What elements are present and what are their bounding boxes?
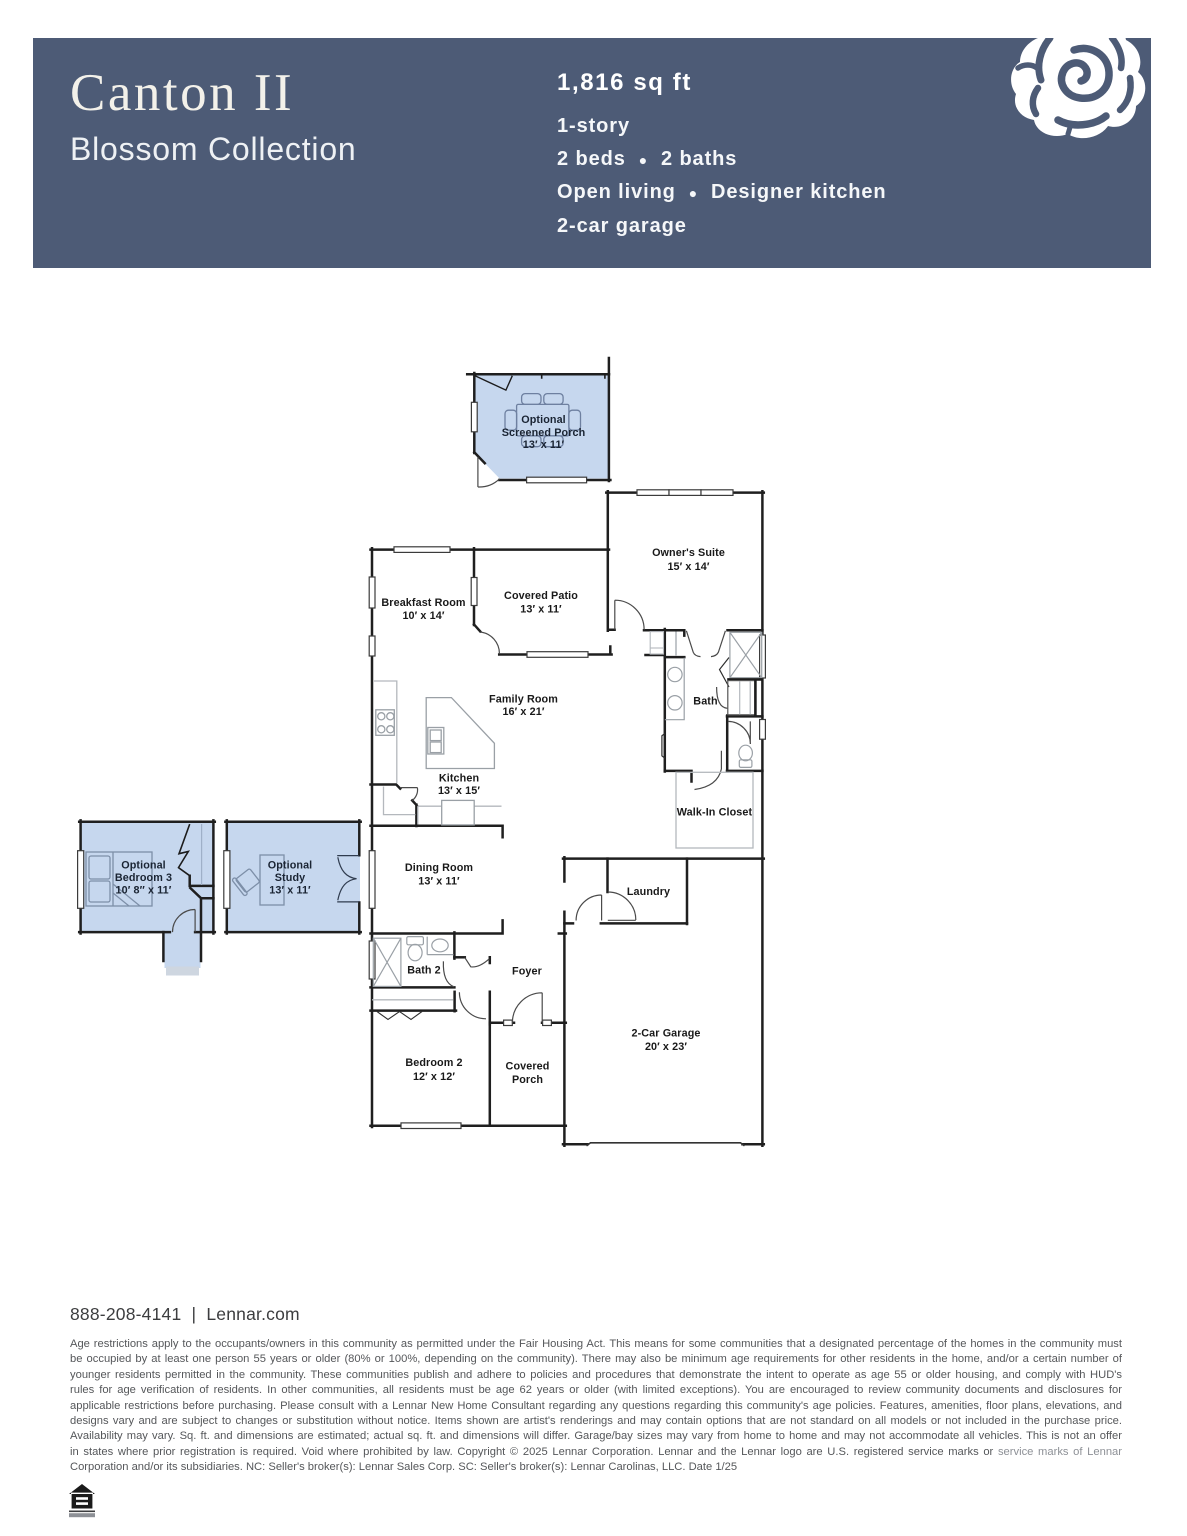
svg-text:Family Room: Family Room bbox=[489, 694, 558, 706]
svg-text:Dining Room: Dining Room bbox=[405, 862, 473, 874]
svg-text:Walk-In Closet: Walk-In Closet bbox=[677, 807, 753, 819]
svg-text:13′ x 11′: 13′ x 11′ bbox=[520, 604, 562, 616]
svg-text:2-Car Garage: 2-Car Garage bbox=[631, 1028, 700, 1040]
svg-text:13′ x 11′: 13′ x 11′ bbox=[523, 439, 565, 451]
svg-text:Owner's Suite: Owner's Suite bbox=[652, 547, 725, 559]
svg-text:Optional: Optional bbox=[521, 414, 566, 426]
svg-text:13′ x 11′: 13′ x 11′ bbox=[269, 885, 311, 897]
svg-text:13′ x 11′: 13′ x 11′ bbox=[418, 876, 460, 888]
svg-text:10′ x 14′: 10′ x 14′ bbox=[402, 610, 444, 622]
svg-text:20′ x 23′: 20′ x 23′ bbox=[645, 1041, 687, 1053]
svg-text:Covered: Covered bbox=[506, 1061, 550, 1073]
svg-text:Optional: Optional bbox=[121, 860, 166, 872]
svg-text:Study: Study bbox=[275, 872, 306, 884]
svg-text:Porch: Porch bbox=[512, 1074, 543, 1086]
svg-text:Bedroom 3: Bedroom 3 bbox=[115, 872, 172, 884]
svg-text:Laundry: Laundry bbox=[627, 886, 670, 898]
svg-text:Covered Patio: Covered Patio bbox=[504, 590, 578, 602]
svg-text:Screened Porch: Screened Porch bbox=[502, 427, 586, 439]
svg-text:15′ x 14′: 15′ x 14′ bbox=[667, 561, 709, 573]
svg-text:Kitchen: Kitchen bbox=[439, 772, 479, 784]
svg-text:Bath: Bath bbox=[693, 696, 717, 708]
svg-text:Foyer: Foyer bbox=[512, 966, 543, 978]
svg-text:10′ 8″ x 11′: 10′ 8″ x 11′ bbox=[116, 885, 172, 897]
svg-text:Bedroom 2: Bedroom 2 bbox=[405, 1057, 462, 1069]
svg-text:Bath 2: Bath 2 bbox=[407, 965, 441, 977]
svg-text:16′ x 21′: 16′ x 21′ bbox=[502, 706, 544, 718]
svg-text:13′ x 15′: 13′ x 15′ bbox=[438, 785, 480, 797]
svg-text:Breakfast Room: Breakfast Room bbox=[381, 597, 465, 609]
svg-text:Optional: Optional bbox=[268, 860, 313, 872]
svg-text:12′ x 12′: 12′ x 12′ bbox=[413, 1071, 455, 1083]
